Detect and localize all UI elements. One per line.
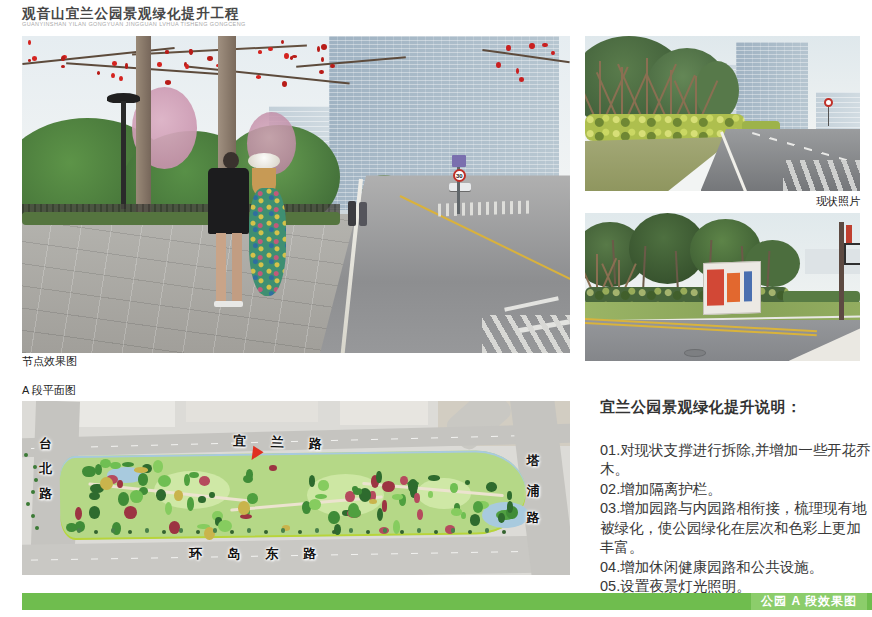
distant-car	[449, 183, 471, 191]
plan-street-tree	[434, 530, 439, 535]
plan-tree	[382, 500, 388, 512]
plan-tree	[89, 492, 100, 501]
plan-tree	[138, 473, 149, 486]
red-flower	[321, 57, 324, 63]
red-flower	[284, 53, 289, 59]
speed-limit-sign: 30	[453, 169, 466, 182]
plan-tree	[318, 480, 329, 490]
plan-tree	[315, 494, 327, 499]
red-flower	[319, 70, 324, 74]
red-flower	[32, 56, 38, 61]
red-flower	[111, 73, 115, 79]
note-item-4: 04.增加休闲健康园路和公共设施。	[600, 558, 872, 577]
street-lamp-pole	[121, 101, 125, 209]
plan-street-tree	[502, 530, 507, 535]
plan-tree	[243, 475, 253, 483]
man-torso	[208, 168, 249, 235]
red-flower	[189, 49, 192, 54]
plan-tree	[470, 514, 480, 526]
plan-tree	[408, 479, 418, 492]
red-flower	[292, 55, 298, 58]
bush-row	[22, 212, 340, 225]
sign-pole	[828, 107, 829, 126]
plan-tree	[461, 512, 466, 519]
speed-limit-value: 30	[456, 173, 463, 179]
red-flower	[258, 50, 262, 54]
plan-tree	[428, 475, 439, 480]
poster-red	[708, 269, 725, 305]
woman-floral-dress	[249, 188, 286, 296]
plan-street-tree	[417, 528, 422, 533]
plan-tree	[174, 490, 183, 501]
plan-tree	[165, 502, 172, 515]
footer-bar-label: 公园 A 段效果图	[751, 593, 867, 610]
sign-frame	[844, 243, 861, 265]
plan-street-tree	[31, 514, 35, 518]
plan-tree	[328, 511, 339, 525]
red-flower	[125, 63, 129, 69]
plan-street-tree	[31, 490, 35, 494]
manhole	[684, 349, 706, 356]
status-photo-1	[585, 36, 860, 191]
plan-street-tree	[128, 530, 133, 535]
plan-tree	[95, 464, 102, 475]
poster-orange	[728, 273, 740, 302]
red-flower	[542, 43, 547, 47]
plan-caption: A 段平面图	[22, 383, 76, 398]
plan-street-tree	[451, 528, 456, 533]
plan-tree	[507, 501, 514, 513]
red-flower	[61, 56, 65, 61]
red-flower	[282, 81, 287, 87]
red-flower	[496, 62, 501, 68]
poster-blue	[744, 271, 752, 301]
plan-tree	[153, 460, 164, 473]
plan-tree	[451, 508, 462, 516]
plan-tree	[156, 489, 166, 501]
plan-street-tree	[298, 530, 303, 535]
red-flower	[165, 80, 171, 84]
plan-tree	[134, 467, 148, 473]
red-flower	[157, 62, 161, 66]
utility-pole	[839, 222, 844, 320]
plan-street-tree	[264, 530, 269, 535]
pedestrian-figure	[348, 201, 356, 226]
plan-tree	[428, 491, 433, 498]
node-render-caption: 节点效果图	[22, 354, 77, 369]
red-flower	[185, 64, 189, 69]
red-flower	[317, 46, 320, 52]
plan-tree	[130, 490, 143, 503]
notes-heading: 宜兰公园景观绿化提升说明：	[600, 398, 872, 417]
plan-tree	[507, 491, 512, 500]
plan-street-tree	[349, 528, 354, 533]
footer-bar: 公园 A 段效果图	[22, 593, 872, 610]
plan-tree	[198, 496, 206, 503]
plan-street-tree	[230, 530, 235, 535]
plan-tree	[89, 506, 100, 518]
plan-tree	[187, 497, 194, 510]
status-photos-caption: 现状照片	[816, 194, 860, 209]
plan-map: 台北路 宜兰路 环岛东路 塔浦路	[22, 401, 570, 575]
plan-tree	[169, 521, 180, 534]
page-subtitle-pinyin: GUANYINSHAN YILAN GONGYUAN JINGGUAN LVHU…	[22, 21, 246, 27]
plan-tree	[414, 493, 420, 504]
red-flower	[516, 68, 519, 73]
plan-street-tree	[196, 530, 201, 535]
plan-street-tree	[315, 528, 320, 533]
plan-tree	[82, 466, 95, 478]
plan-tree	[110, 462, 120, 469]
plan-street-tree	[35, 526, 39, 530]
plan-street-tree	[247, 528, 252, 533]
plan-tree	[209, 492, 214, 498]
road-label-taibei: 台北路	[36, 425, 54, 503]
plan-street-tree	[145, 528, 150, 533]
tree-trunk	[136, 36, 151, 220]
man-shoes	[214, 301, 244, 307]
plan-tree	[238, 501, 250, 515]
man-head	[223, 152, 239, 169]
road-label-tapu: 塔浦路	[523, 443, 541, 530]
red-flower	[28, 40, 31, 45]
status-photo-2	[585, 213, 860, 361]
plan-tree	[486, 482, 497, 492]
note-item-1: 01.对现状支撑进行拆除,并增加一些开花乔木。	[600, 441, 872, 480]
plan-tree	[352, 486, 358, 492]
road-label-huandao-dong: 环岛东路	[189, 545, 341, 563]
woman-hat	[248, 153, 280, 169]
plan-tree	[124, 506, 137, 519]
red-banner	[846, 225, 852, 243]
plan-tree	[117, 480, 123, 489]
man-leg	[216, 233, 226, 303]
plan-street-tree	[281, 528, 286, 533]
plan-tree	[75, 507, 82, 521]
plan-tree	[118, 492, 129, 505]
plan-tree	[100, 477, 113, 491]
plan-street-tree	[179, 528, 184, 533]
plan-tree	[199, 476, 210, 485]
plan-tree	[348, 508, 361, 518]
presentation-page: 观音山宜兰公园景观绿化提升工程 GUANYINSHAN YILAN GONGYU…	[0, 0, 872, 617]
plan-street-tree	[111, 528, 116, 533]
plan-street-tree	[485, 528, 490, 533]
pedestrian-figure	[359, 202, 367, 226]
plan-tree	[309, 499, 321, 509]
plan-street-tree	[77, 528, 82, 533]
red-flower	[207, 56, 213, 61]
plan-tree	[369, 499, 377, 504]
crosswalk-corner	[482, 315, 570, 353]
red-flower	[268, 47, 273, 51]
plan-tree	[189, 472, 199, 478]
red-flower	[256, 75, 262, 79]
plan-tree	[465, 480, 471, 485]
plan-street-tree	[162, 530, 167, 535]
plan-tree	[473, 501, 483, 513]
plan-tree	[450, 483, 458, 493]
plan-street-tree	[94, 530, 99, 535]
red-flower	[519, 77, 524, 81]
plan-street-tree	[366, 530, 371, 535]
crosswalk-corner	[783, 160, 860, 191]
plan-tree	[392, 494, 403, 499]
red-flower	[165, 50, 170, 53]
red-flower	[97, 71, 100, 75]
plan-street-tree	[383, 528, 388, 533]
red-flower	[28, 59, 32, 62]
red-flower	[321, 44, 327, 50]
red-flower	[330, 64, 335, 69]
man-leg	[232, 233, 242, 303]
plan-tree	[309, 475, 316, 487]
note-item-2: 02.增加隔离护栏。	[600, 480, 872, 499]
plan-tree	[269, 465, 277, 471]
billboard	[703, 261, 761, 315]
red-flower	[119, 76, 123, 82]
red-flower	[281, 40, 285, 45]
plan-tree	[122, 462, 135, 467]
plan-tree	[382, 481, 395, 492]
node-render-photo: 30	[22, 36, 570, 353]
plan-street-tree	[26, 502, 30, 506]
note-item-3: 03.增加园路与内园路相衔接，梳理现有地被绿化，使公园绿化在层次和色彩上更加丰富…	[600, 499, 872, 557]
plan-street-tree	[24, 453, 28, 457]
red-flower	[61, 65, 65, 69]
plan-street-tree	[468, 530, 473, 535]
red-flower	[529, 43, 535, 49]
notes-panel: 宜兰公园景观绿化提升说明： 01.对现状支撑进行拆除,并增加一些开花乔木。 02…	[600, 398, 872, 596]
plan-street-tree	[213, 528, 218, 533]
plan-tree	[498, 513, 505, 523]
red-flower	[551, 51, 555, 55]
plan-tree	[158, 475, 171, 487]
red-flower	[506, 45, 510, 51]
plan-tree	[417, 509, 424, 520]
direction-sign	[452, 155, 466, 167]
red-flower	[112, 61, 117, 65]
plan-tree	[376, 471, 381, 483]
plan-street-tree	[400, 530, 405, 535]
